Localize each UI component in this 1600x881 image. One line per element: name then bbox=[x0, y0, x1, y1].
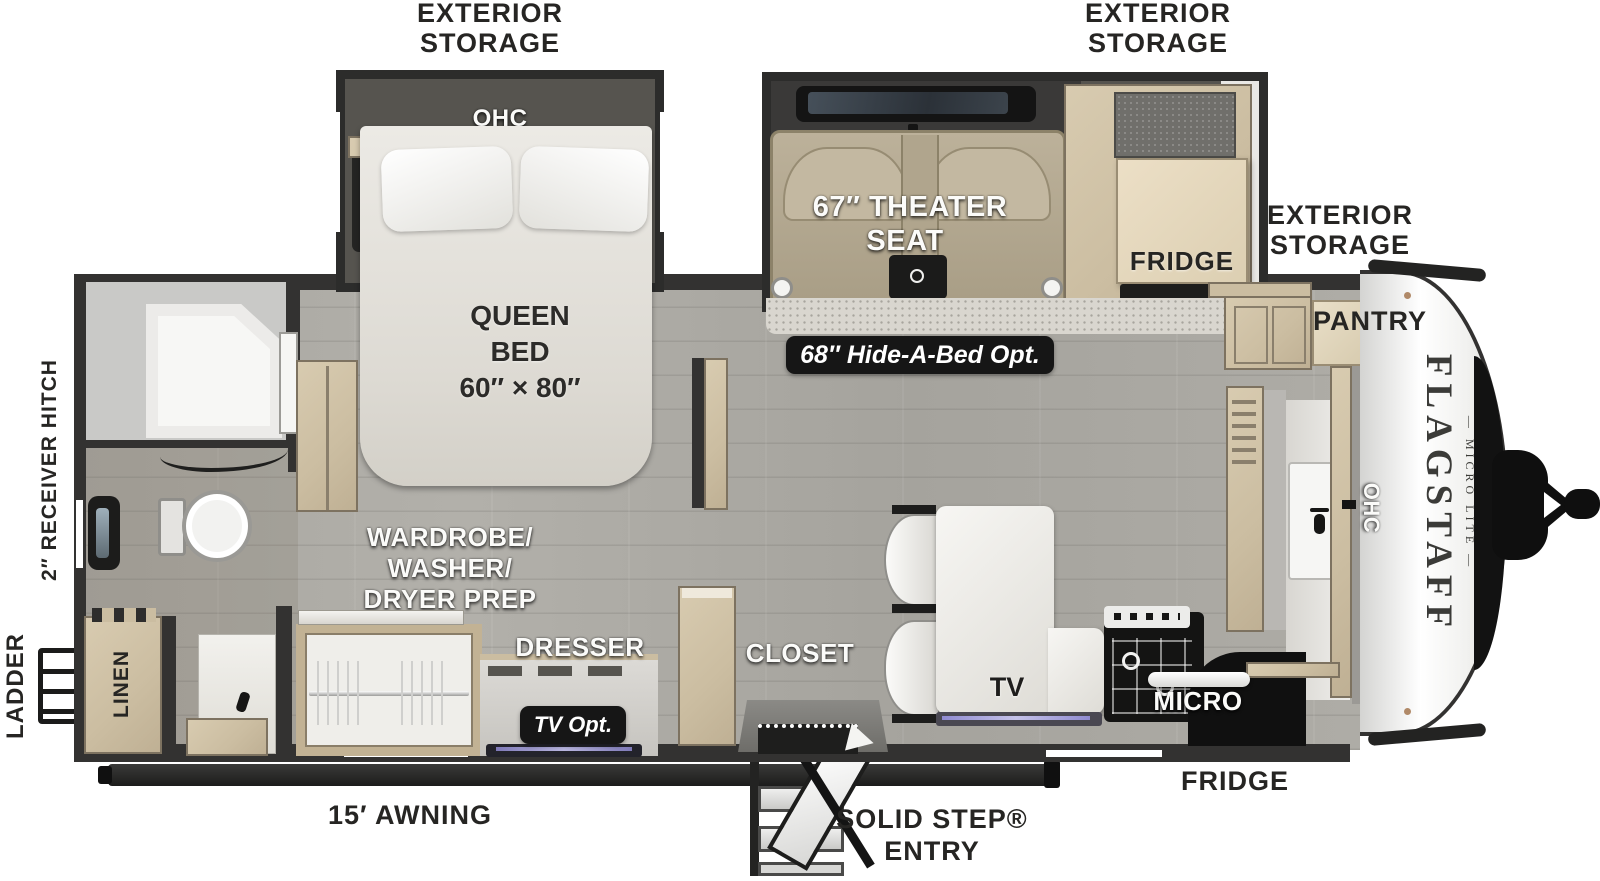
brand-logo-sub: — MICRO LITE — bbox=[1463, 395, 1477, 591]
kitchen-ohc-pointer bbox=[1342, 500, 1356, 509]
closet-label: CLOSET bbox=[740, 638, 860, 668]
linen-partition bbox=[162, 616, 176, 754]
micro-handle bbox=[1148, 672, 1250, 687]
hitch-ball-mount bbox=[1564, 489, 1600, 519]
dinette-seat-top bbox=[884, 514, 940, 606]
ext-storage-rear-label-line2: STORAGE bbox=[390, 28, 590, 58]
theater-console-tray bbox=[889, 255, 947, 299]
theater-label-line2: SEAT bbox=[790, 226, 1020, 256]
cupholder-right bbox=[1041, 277, 1063, 299]
closet-cabinet bbox=[678, 586, 736, 746]
hangers-right bbox=[401, 661, 447, 725]
toilet-icon bbox=[158, 490, 254, 564]
fridge-counter-top bbox=[1114, 92, 1236, 158]
brand-logo: FLAGSTAFF bbox=[1420, 334, 1460, 654]
hide-a-bed-badge: 68″ Hide-A-Bed Opt. bbox=[786, 336, 1054, 374]
kitchen-faucet-icon bbox=[1314, 514, 1325, 534]
dinette-seat-bracket-3 bbox=[892, 714, 936, 723]
dinette-seat-bracket-1 bbox=[892, 505, 936, 514]
dinette-seat-bottom bbox=[884, 620, 940, 716]
awning-bracket bbox=[1044, 760, 1060, 788]
hangers-left bbox=[317, 661, 363, 725]
wardrobe-unit bbox=[296, 624, 482, 756]
floorplan-canvas: LINEN OHC QUEEN BED 60″ × 80″ WARDROBE/ … bbox=[0, 0, 1600, 881]
linen-label: LINEN bbox=[110, 624, 134, 744]
bathroom-window bbox=[88, 496, 120, 570]
entry-label-line2: ENTRY bbox=[832, 836, 1032, 866]
entry-doormat bbox=[758, 724, 858, 754]
ext-storage-front-label-line2: STORAGE bbox=[1058, 28, 1258, 58]
wardrobe-countertop bbox=[298, 610, 464, 625]
fridge-slide-label: FRIDGE bbox=[1112, 246, 1252, 277]
bath-sink-icon bbox=[186, 718, 268, 756]
kitchen-backsplash bbox=[1264, 390, 1286, 630]
bedroom-partition-panel bbox=[704, 358, 728, 510]
bedroom-slide-window-right bbox=[660, 112, 668, 232]
theater-label-line1: 67″ THEATER bbox=[790, 192, 1030, 222]
dinette-seat-bracket-2 bbox=[892, 604, 936, 613]
propane-cover-icon bbox=[1492, 450, 1548, 560]
tv-label: TV bbox=[957, 672, 1057, 703]
ext-storage-side-label-line1: EXTERIOR bbox=[1240, 200, 1440, 230]
nose-rivet-bottom bbox=[1404, 708, 1411, 715]
awning-label: 15′ AWNING bbox=[310, 800, 510, 830]
ext-fridge-label: FRIDGE bbox=[1135, 766, 1335, 796]
awning-end-cap bbox=[98, 766, 112, 784]
ext-storage-side-label-line2: STORAGE bbox=[1240, 230, 1440, 260]
dresser-drawers bbox=[488, 666, 638, 676]
wardrobe-label-line1: WARDROBE/ bbox=[330, 522, 570, 552]
top-wall-mid-section bbox=[658, 274, 768, 290]
ext-storage-front-label-line1: EXTERIOR bbox=[1058, 0, 1258, 28]
nose-rivet-top bbox=[1404, 292, 1411, 299]
wardrobe-partition bbox=[276, 606, 292, 754]
pantry-label: PANTRY bbox=[1290, 306, 1450, 336]
linen-cabinet-top-slats bbox=[92, 608, 156, 622]
bed-label-line3: 60″ × 80″ bbox=[420, 372, 620, 404]
bed-label-line2: BED bbox=[420, 336, 620, 368]
rear-wall-window-slot bbox=[76, 500, 83, 568]
ladder-label: LADDER bbox=[2, 611, 30, 761]
micro-label: MICRO bbox=[1128, 686, 1268, 716]
bed-pillow-right bbox=[519, 146, 650, 232]
micro-shelf bbox=[1246, 662, 1340, 678]
kitchen-ohc-label: OHC bbox=[1359, 468, 1383, 548]
cupholder-left bbox=[771, 277, 793, 299]
tv-opt-badge: TV Opt. bbox=[520, 706, 626, 744]
dresser-tv-icon bbox=[486, 744, 642, 757]
bedroom-wardrobe-cabinet bbox=[296, 360, 358, 512]
bedroom-slide-window-left bbox=[332, 112, 340, 232]
shower bbox=[86, 282, 294, 448]
kitchen-cabinet-column bbox=[1226, 386, 1264, 632]
hide-a-bed-carpet bbox=[766, 298, 1266, 334]
awning-bar bbox=[108, 764, 1048, 786]
bed-label-line1: QUEEN bbox=[420, 300, 620, 332]
bottom-wall-window-2 bbox=[1046, 750, 1162, 757]
wardrobe-label-line2: WASHER/ bbox=[330, 553, 570, 583]
theater-window bbox=[796, 86, 1036, 122]
entry-label-line1: SOLID STEP® bbox=[832, 804, 1032, 834]
hitch-coupler-notch bbox=[1544, 492, 1561, 518]
bed-pillow-left bbox=[381, 146, 514, 232]
ext-storage-rear-label-line1: EXTERIOR bbox=[390, 0, 590, 28]
tv-strip-icon bbox=[936, 712, 1102, 726]
dresser-label: DRESSER bbox=[500, 632, 660, 662]
kitchen-counter-edge bbox=[1330, 366, 1352, 698]
receiver-hitch-label: 2″ RECEIVER HITCH bbox=[37, 320, 63, 620]
